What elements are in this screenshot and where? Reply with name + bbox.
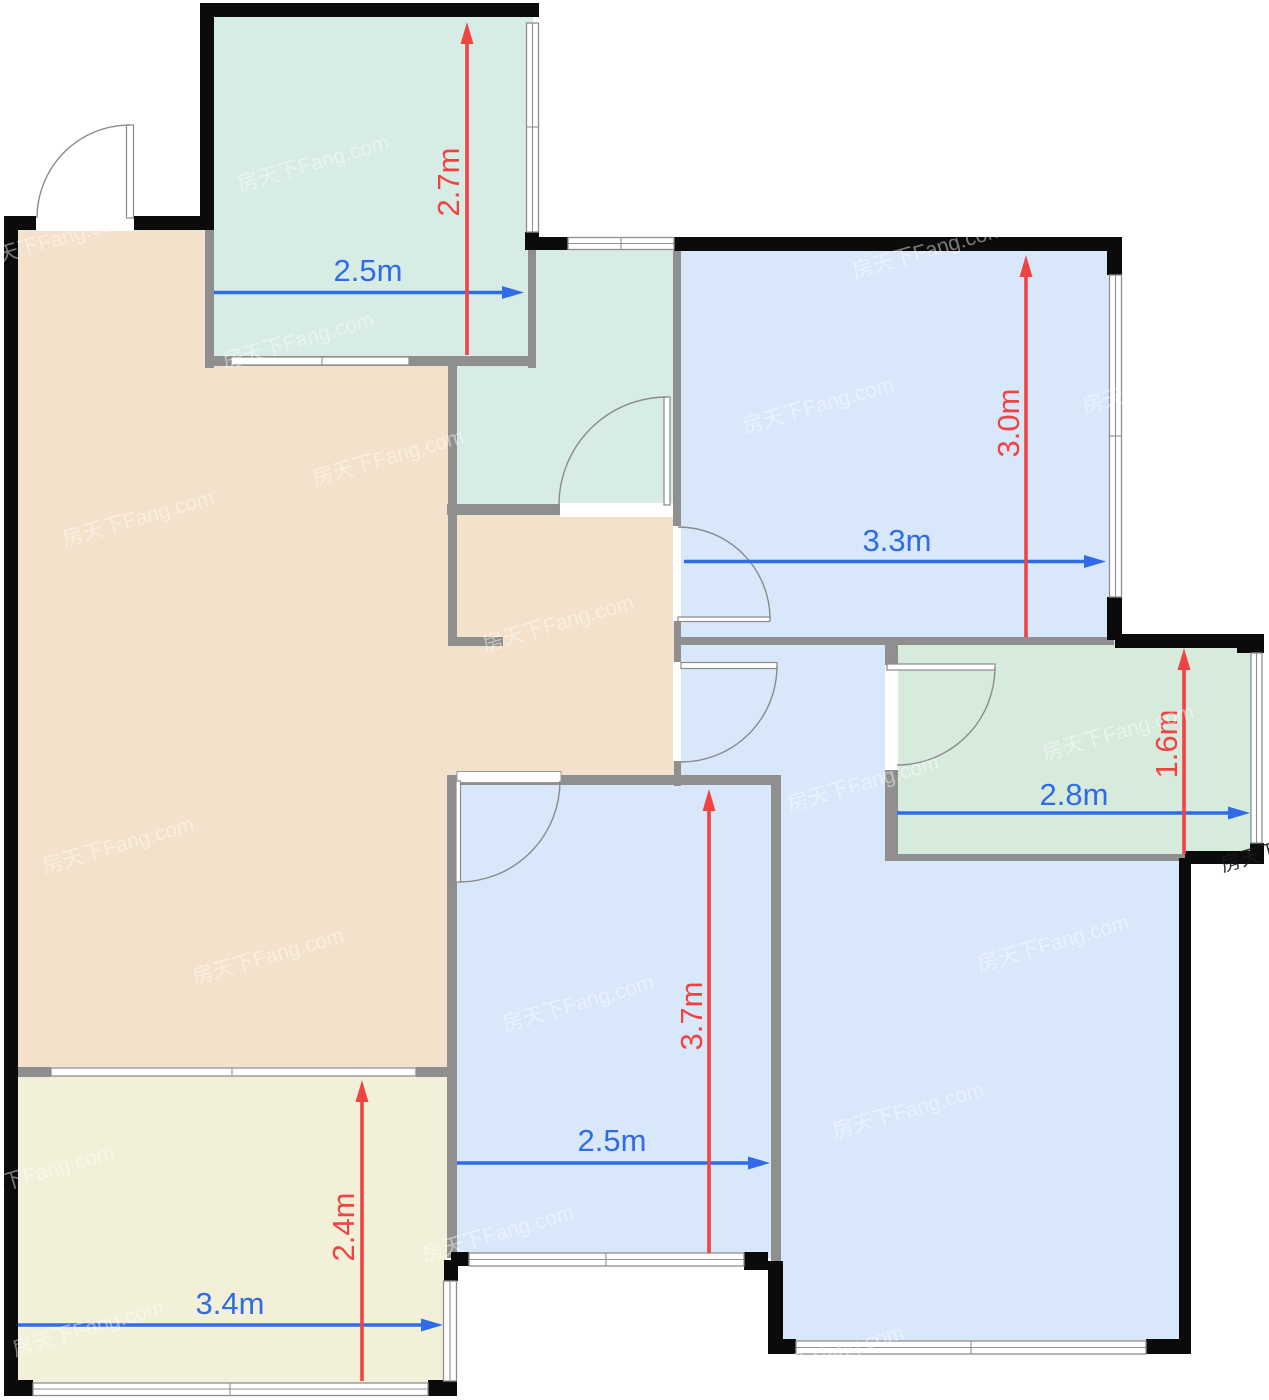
- svg-text:2.4m: 2.4m: [326, 1193, 361, 1262]
- svg-text:3.7m: 3.7m: [674, 982, 709, 1051]
- svg-text:3.3m: 3.3m: [863, 523, 932, 558]
- svg-text:2.5m: 2.5m: [578, 1123, 647, 1158]
- svg-text:2.5m: 2.5m: [334, 253, 403, 288]
- svg-text:3.0m: 3.0m: [991, 389, 1026, 458]
- svg-text:3.4m: 3.4m: [196, 1286, 265, 1321]
- svg-text:2.7m: 2.7m: [431, 148, 466, 217]
- svg-text:2.8m: 2.8m: [1040, 777, 1109, 812]
